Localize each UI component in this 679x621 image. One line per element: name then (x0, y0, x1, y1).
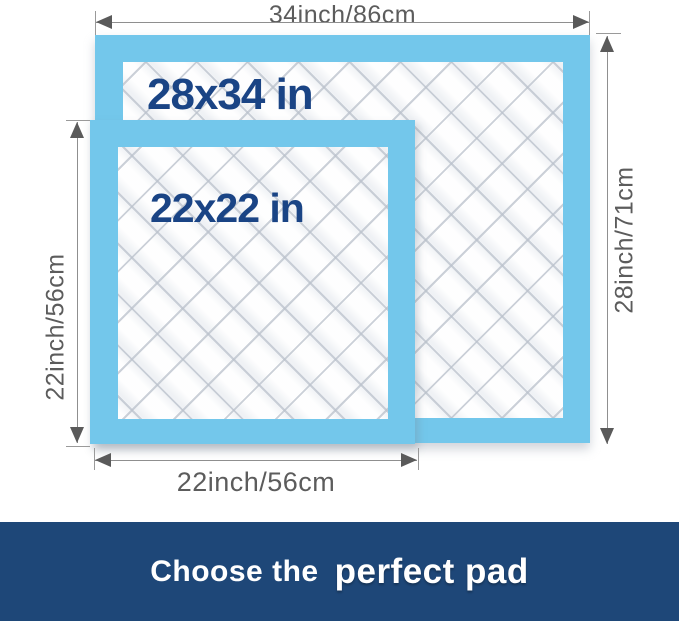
pad-small-size-label: 22x22 in (150, 185, 304, 232)
dimension-line (96, 22, 589, 23)
arrowhead-right-icon (401, 453, 417, 467)
dimension-tick (66, 120, 90, 121)
arrowhead-left-icon (96, 15, 112, 29)
banner: Choose the perfect pad (0, 522, 679, 621)
dimension-line (607, 36, 608, 444)
banner-text-bold: perfect pad (335, 552, 529, 592)
pad-small: 22x22 in (90, 120, 415, 444)
dimension-left-label: 22inch/56cm (42, 253, 71, 400)
pad-small-quilt-surface: 22x22 in (118, 147, 388, 419)
dimension-tick (596, 33, 621, 34)
dimension-line (95, 460, 417, 461)
banner-text-regular: Choose the (150, 555, 318, 589)
dimension-tick (589, 11, 590, 35)
dimension-tick (95, 11, 96, 35)
pad-size-diagram: 34inch/86cm 28x34 in 22x22 in 22inch/56c… (0, 0, 679, 621)
arrowhead-down-icon (70, 427, 84, 443)
arrowhead-up-icon (70, 122, 84, 138)
dimension-line (77, 122, 78, 443)
dimension-tick (418, 448, 419, 470)
arrowhead-right-icon (573, 15, 589, 29)
dimension-bottom-arrow (95, 453, 417, 467)
dimension-right-arrow (600, 36, 615, 444)
arrowhead-left-icon (95, 453, 111, 467)
dimension-tick (66, 446, 90, 447)
pad-large-size-label: 28x34 in (147, 70, 313, 120)
arrowhead-up-icon (600, 36, 614, 52)
dimension-left-arrow (70, 122, 85, 443)
dimension-top-arrow (96, 15, 589, 29)
arrowhead-down-icon (600, 428, 614, 444)
dimension-tick (94, 448, 95, 470)
dimension-bottom-label: 22inch/56cm (95, 467, 417, 498)
